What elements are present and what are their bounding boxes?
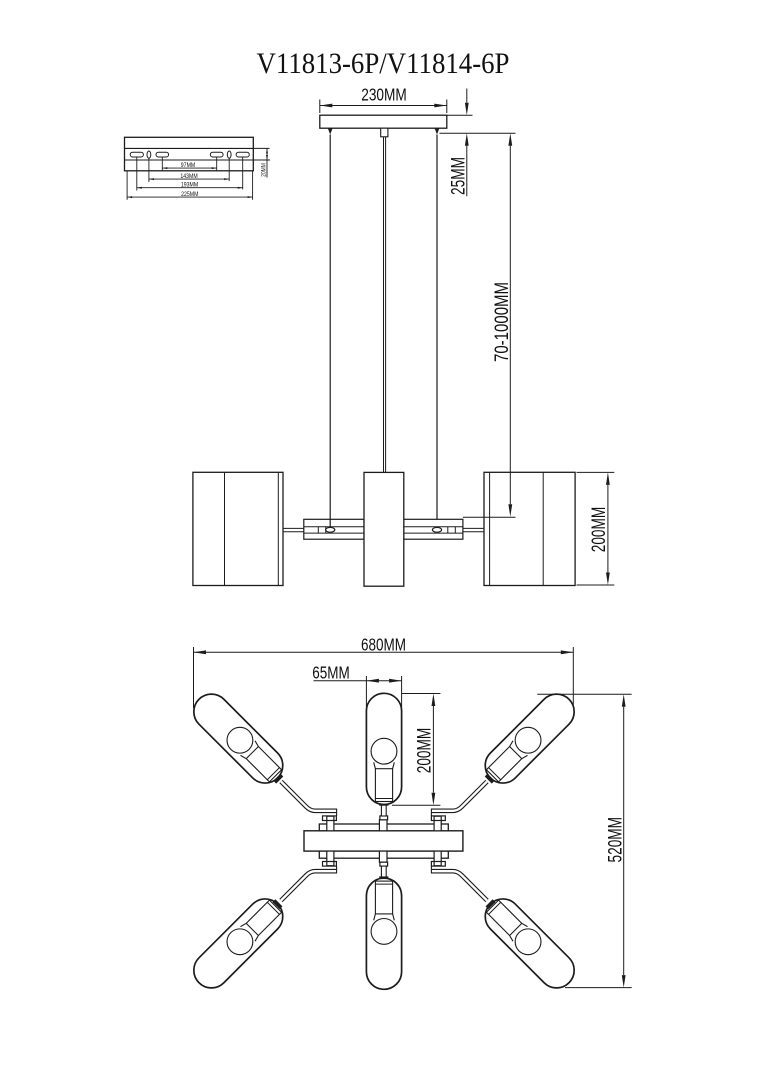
svg-text:200MM: 200MM xyxy=(588,507,610,553)
svg-text:V11813-6P/V11814-6P: V11813-6P/V11814-6P xyxy=(257,48,510,81)
svg-text:143MM: 143MM xyxy=(180,174,197,181)
svg-text:20MM: 20MM xyxy=(261,163,268,177)
svg-text:520MM: 520MM xyxy=(604,817,626,863)
svg-text:193MM: 193MM xyxy=(181,182,198,189)
svg-text:65MM: 65MM xyxy=(312,664,349,683)
svg-text:97MM: 97MM xyxy=(181,163,196,170)
svg-text:200MM: 200MM xyxy=(413,728,435,774)
svg-text:230MM: 230MM xyxy=(361,86,407,105)
svg-text:225MM: 225MM xyxy=(181,192,198,199)
svg-text:680MM: 680MM xyxy=(361,636,406,655)
svg-text:25MM: 25MM xyxy=(447,157,469,195)
svg-text:70-1000MM: 70-1000MM xyxy=(490,282,512,362)
